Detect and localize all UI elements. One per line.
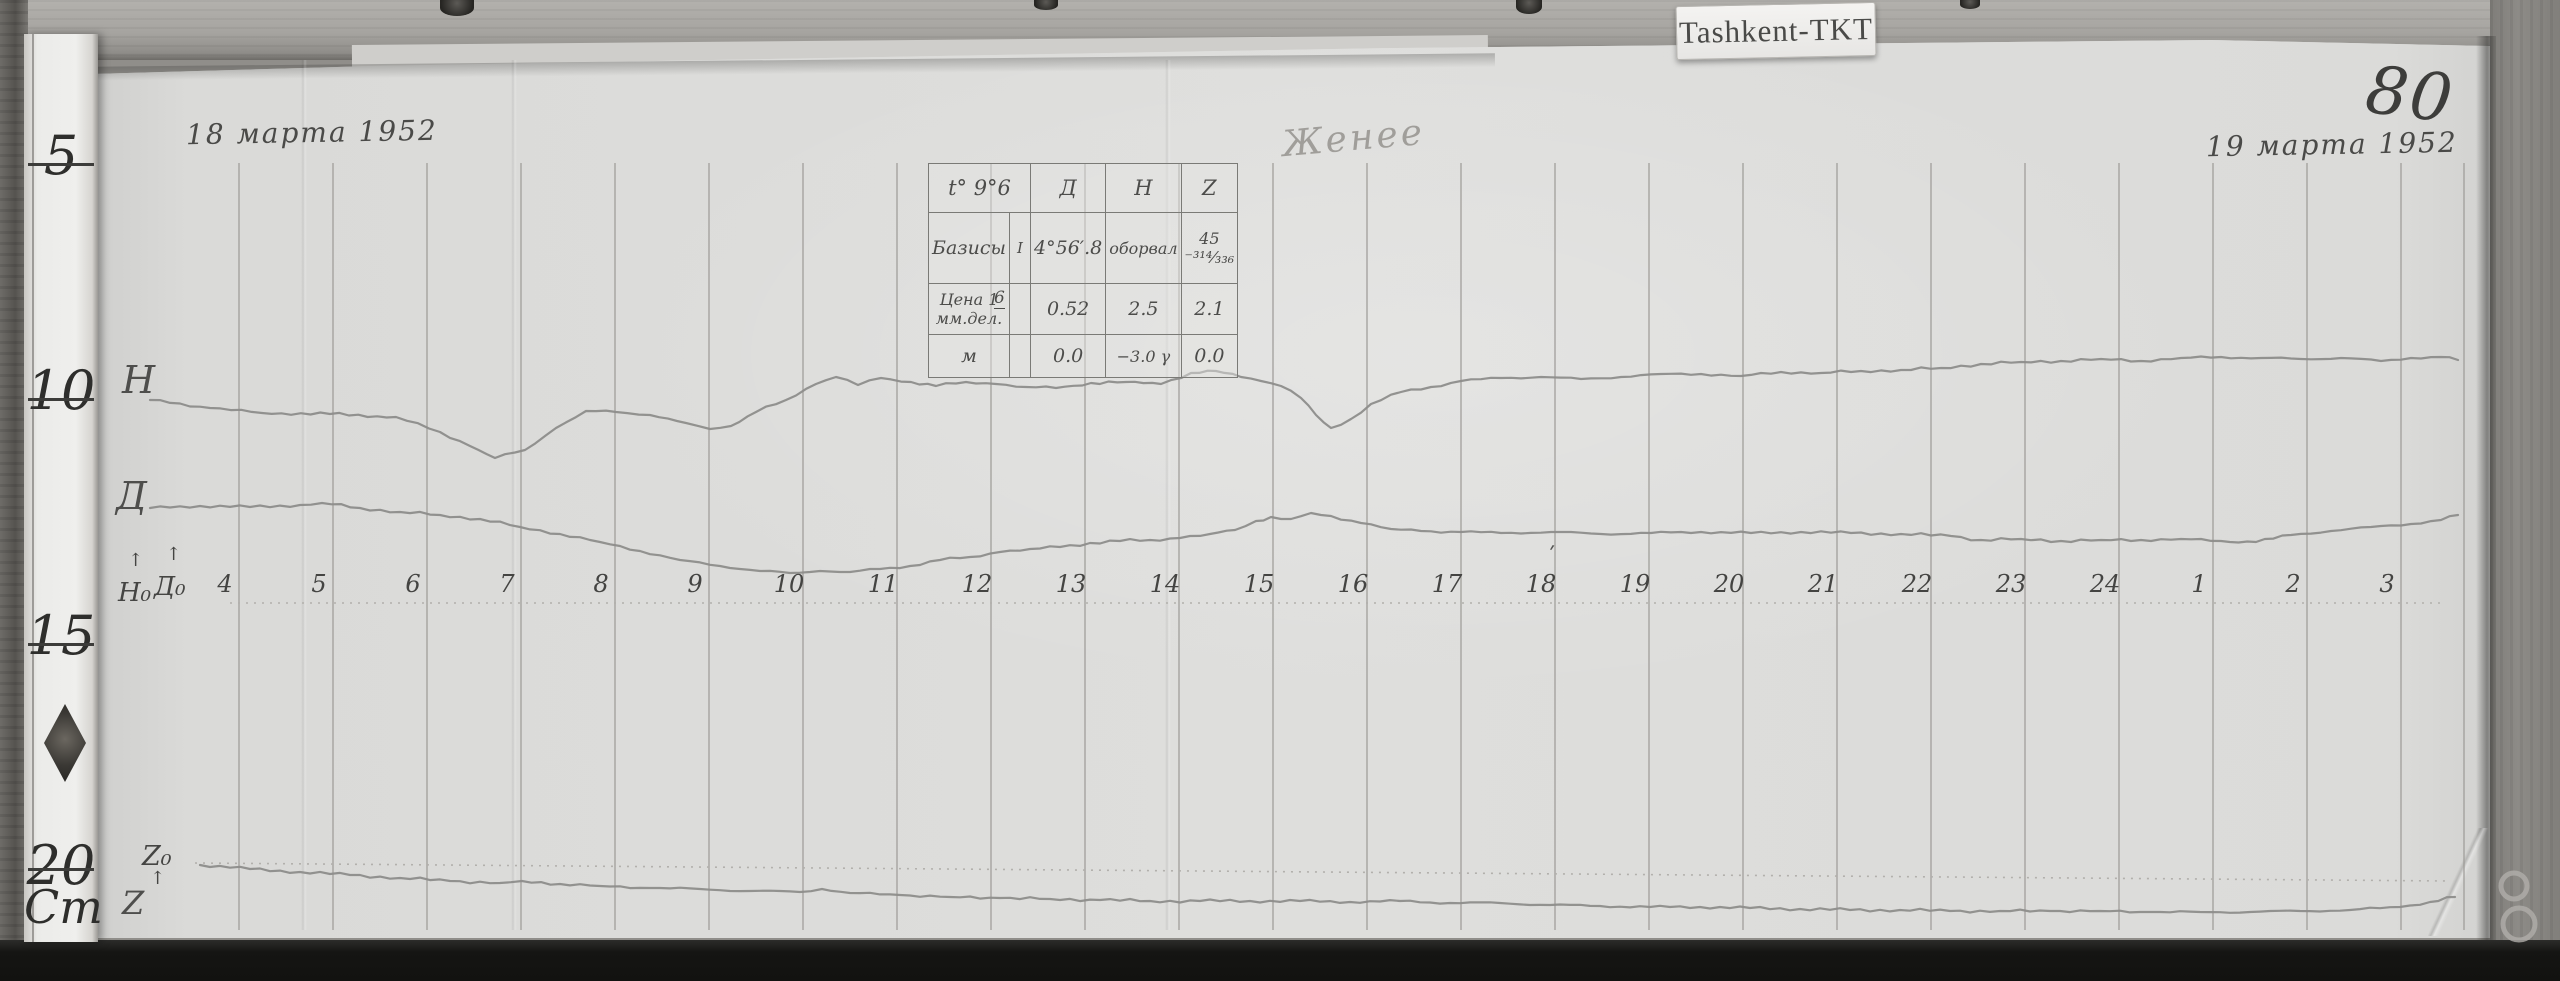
hour-label: 18: [1526, 570, 1557, 598]
ruler-mark-15: 15: [24, 609, 98, 663]
pin-knob-icon: [1034, 0, 1058, 10]
table-cell: Базисы: [929, 213, 1010, 284]
hour-label: 10: [774, 570, 805, 598]
table-row-bases: Базисы І 4°56′.8 оборвал 45 ⁻³¹⁴⁄₃₃₆: [929, 213, 1238, 284]
baseline-label-h0: H₀: [118, 578, 151, 608]
pin-knob-icon: [1516, 0, 1542, 14]
baseline-label-d0: Д₀: [154, 572, 186, 602]
calibration-table: t° 9°6 Д H Z Базисы І 4°56′.8 оборвал 45…: [928, 163, 1238, 378]
paper-crease: [301, 60, 307, 930]
table-note-6: 6: [994, 288, 1005, 309]
table-cell: 0.0: [1181, 335, 1238, 378]
hour-label: 22: [1902, 570, 1933, 598]
trace-label-h: H: [122, 358, 155, 402]
hour-label: 11: [868, 570, 899, 598]
page-number: 80: [2362, 51, 2459, 138]
hour-label: 1: [2191, 570, 2206, 598]
hour-label: 12: [962, 570, 993, 598]
paper-crease: [511, 60, 517, 930]
table-cell: t° 9°6: [929, 164, 1031, 213]
table-cell: [1010, 335, 1031, 378]
photo-stage: 5 10 15 20 Cm 18 марта 1952 19 марта 195…: [0, 0, 2560, 981]
table-cell: оборвал: [1106, 213, 1181, 284]
table-cell: −3.0 γ: [1106, 335, 1181, 378]
hour-label: 2: [2285, 570, 2300, 598]
up-arrow-icon: ↑: [166, 544, 181, 565]
hour-label: 14: [1150, 570, 1181, 598]
up-arrow-icon: ↑: [128, 550, 143, 571]
table-cell: Z: [1181, 164, 1238, 213]
hour-label: 16: [1338, 570, 1369, 598]
hour-label: 4: [217, 570, 232, 598]
ruler-line: [28, 643, 94, 646]
station-label-card: Tashkent-TKT: [1675, 2, 1876, 60]
ruler-mark-5: 5: [24, 129, 98, 183]
date-left: 18 марта 1952: [186, 114, 438, 151]
hour-label: 24: [2090, 570, 2121, 598]
ruler-unit-label: Cm: [24, 880, 98, 934]
ruler-mark-10: 10: [24, 364, 98, 418]
ruler-line: [28, 868, 94, 871]
table-cell: 0.0: [1031, 335, 1106, 378]
sheet-right-seam: [2476, 36, 2496, 940]
hour-label: 17: [1432, 570, 1463, 598]
table-row-header: t° 9°6 Д H Z: [929, 164, 1238, 213]
hour-label: 6: [405, 570, 420, 598]
table-cell: [1010, 284, 1031, 335]
trace-label-d: Д: [116, 474, 147, 518]
pin-knob-icon: [1960, 0, 1980, 9]
table-cell: І: [1010, 213, 1031, 284]
hour-label: 23: [1996, 570, 2027, 598]
ruler: 5 10 15 20 Cm: [24, 34, 98, 942]
hour-label: 7: [499, 570, 514, 598]
ruler-line: [28, 398, 94, 401]
hour-label: 20: [1714, 570, 1745, 598]
hour-label: 19: [1620, 570, 1651, 598]
table-cell: м: [929, 335, 1010, 378]
hour-label: 21: [1808, 570, 1839, 598]
corner-fold: [2428, 828, 2490, 936]
table-cell: 0.52: [1031, 284, 1106, 335]
table-cell: 45 ⁻³¹⁴⁄₃₃₆: [1181, 213, 1238, 284]
hour-label: 9: [687, 570, 702, 598]
bottom-shadow-strip: [0, 940, 2560, 981]
table-cell: Д: [1031, 164, 1106, 213]
hour-label: 5: [311, 570, 326, 598]
hour-label: 13: [1056, 570, 1087, 598]
magnetogram-sheet: [92, 40, 2490, 938]
up-arrow-icon: ↑: [150, 868, 165, 889]
table-cell: H: [1106, 164, 1181, 213]
table-cell: 4°56′.8: [1031, 213, 1106, 284]
hour-label: 3: [2379, 570, 2394, 598]
pin-knob-icon: [440, 0, 474, 16]
table-row-mu: м 0.0 −3.0 γ 0.0: [929, 335, 1238, 378]
hour-label: 8: [593, 570, 608, 598]
wooden-board-right: [2490, 0, 2560, 981]
ruler-line: [28, 163, 94, 166]
table-row-scale: Цена 1 мм.дел. 0.52 2.5 2.1: [929, 284, 1238, 335]
table-cell: 2.5: [1106, 284, 1181, 335]
table-cell: 2.1: [1181, 284, 1238, 335]
trace-label-z: Z: [122, 884, 144, 922]
station-label: Tashkent-TKT: [1679, 11, 1874, 51]
hour-label: 15: [1244, 570, 1275, 598]
